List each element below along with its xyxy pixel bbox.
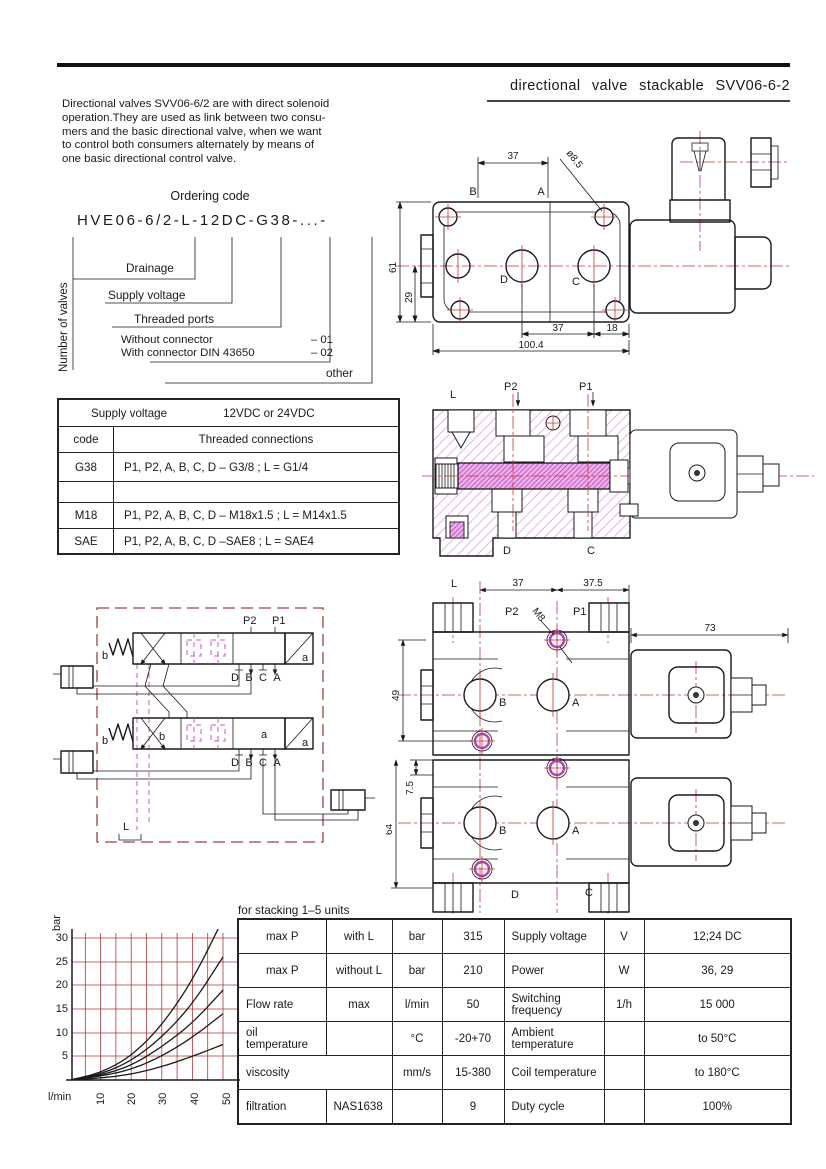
spec-cell: W — [604, 954, 644, 988]
dim-49: 49 — [391, 689, 402, 701]
flow-pressure-chart: bar 30 25 20 15 10 5 l/min 10 20 30 40 5… — [42, 893, 242, 1128]
b-label: b — [102, 735, 108, 747]
spec-cell: 100% — [644, 1090, 791, 1125]
dim-18: 18 — [606, 323, 618, 334]
table-row: M18 P1, P2, A, B, C, D – M18x1.5 ; L = M… — [59, 502, 398, 528]
spec-cell: max P — [238, 919, 326, 954]
x-tick: 20 — [126, 1093, 138, 1105]
port-c-label: C — [587, 545, 595, 557]
code-cell — [59, 482, 114, 502]
port-letter: B — [245, 672, 252, 684]
x-tick: 50 — [221, 1093, 233, 1105]
spec-cell: NAS1638 — [326, 1090, 392, 1125]
dim-29: 29 — [404, 291, 415, 303]
port-c-label: C — [572, 276, 580, 288]
drainage-label: Drainage — [126, 261, 174, 275]
spec-cell: 12;24 DC — [644, 919, 791, 954]
l-label: L — [451, 578, 457, 590]
table-row: G38 P1, P2, A, B, C, D – G3/8 ; L = G1/4 — [59, 452, 398, 481]
port-letter: D — [231, 757, 239, 769]
p2-label: P2 — [505, 606, 518, 618]
spec-cell: without L — [326, 954, 392, 988]
ordering-connector-lines — [55, 190, 395, 395]
x-tick: 30 — [157, 1093, 169, 1105]
dim-73: 73 — [704, 623, 716, 634]
port-letter: A — [273, 672, 281, 684]
spec-cell — [392, 1090, 442, 1125]
intro-line: mers and the basic directional valve, wh… — [62, 126, 362, 140]
with-connector-code: – 02 — [311, 347, 333, 360]
spec-cell: V — [604, 919, 644, 954]
y-tick: 5 — [62, 1050, 68, 1062]
port-b-label: B — [469, 186, 476, 198]
supply-voltage-title: Supply voltage — [91, 407, 167, 420]
dim-100-4: 100.4 — [518, 340, 543, 351]
spec-cell: 210 — [442, 954, 504, 988]
port-a-label: A — [572, 697, 580, 709]
spec-cell: 9 — [442, 1090, 504, 1125]
dim-64: 64 — [386, 823, 395, 835]
page-title: directional valve stackable SVV06-6-2 — [430, 78, 790, 94]
y-tick: 20 — [56, 979, 68, 991]
spec-cell — [326, 1022, 392, 1056]
datasheet-page: directional valve stackable SVV06-6-2 Di… — [0, 0, 826, 1169]
y-tick: 10 — [56, 1027, 68, 1039]
spec-cell: oil temperature — [238, 1022, 326, 1056]
port-a-label: A — [572, 825, 580, 837]
supply-voltage-table: Supply voltage 12VDC or 24VDC code Threa… — [57, 398, 400, 555]
port-b-label: B — [499, 825, 506, 837]
spec-cell: Duty cycle — [504, 1090, 604, 1125]
spec-cell: 15 000 — [644, 988, 791, 1022]
intro-paragraph: Directional valves SVV06-6/2 are with di… — [62, 98, 362, 167]
table-row: filtration NAS1638 9 Duty cycle 100% — [238, 1090, 791, 1125]
y-tick: 15 — [56, 1003, 68, 1015]
spec-cell: viscosity — [238, 1056, 392, 1090]
spec-cell — [604, 1056, 644, 1090]
spec-cell: max — [326, 988, 392, 1022]
spec-cell: Coil temperature — [504, 1056, 604, 1090]
stacked-valves-drawing: 37 37.5 73 49 7.5 64 M8 L P2 P1 B A B A … — [386, 573, 806, 918]
spec-cell — [604, 1022, 644, 1056]
intro-line: Directional valves SVV06-6/2 are with di… — [62, 98, 362, 112]
port-letter: B — [245, 757, 252, 769]
spec-table-caption: for stacking 1–5 units — [238, 903, 349, 917]
dim-37-top: 37 — [507, 151, 519, 162]
without-connector-label: Without connector — [121, 334, 213, 347]
dim-37-bottom: 37 — [552, 323, 564, 334]
spec-cell: bar — [392, 954, 442, 988]
spec-cell: filtration — [238, 1090, 326, 1125]
spec-cell: Supply voltage — [504, 919, 604, 954]
p1-label: P1 — [272, 615, 285, 627]
code-cell: SAE — [59, 529, 114, 553]
desc-cell: P1, P2, A, B, C, D – M18x1.5 ; L = M14x1… — [114, 509, 398, 522]
spec-table: max P with L bar 315 Supply voltage V 12… — [237, 918, 792, 1125]
table-row: oil temperature °C -20+70 Ambient temper… — [238, 1022, 791, 1056]
port-p2-label: P2 — [504, 381, 517, 393]
spec-cell: °C — [392, 1022, 442, 1056]
table-row: max P with L bar 315 Supply voltage V 12… — [238, 919, 791, 954]
table-row: code Threaded connections — [59, 426, 398, 452]
dim-61: 61 — [388, 261, 399, 273]
a-label: a — [302, 652, 309, 664]
title-underline — [487, 100, 790, 102]
spec-cell: 315 — [442, 919, 504, 954]
m8-label: M8 — [530, 606, 547, 624]
spec-cell: to 50°C — [644, 1022, 791, 1056]
intro-line: operation.They are used as link between … — [62, 112, 362, 126]
intro-line: one basic directional control valve. — [62, 153, 362, 167]
spec-cell: -20+70 — [442, 1022, 504, 1056]
spec-cell: Ambient temperature — [504, 1022, 604, 1056]
spec-cell: max P — [238, 954, 326, 988]
intro-line: to control both consumers alternately by… — [62, 139, 362, 153]
port-l-label: L — [450, 389, 456, 401]
valve-section-drawing: L P2 P1 D C — [418, 376, 818, 571]
table-row: SAE P1, P2, A, B, C, D –SAE8 ; L = SAE4 — [59, 528, 398, 553]
table-row: Supply voltage 12VDC or 24VDC — [59, 400, 398, 426]
connector-options: Without connector – 01 With connector DI… — [121, 334, 333, 359]
dim-37-5: 37.5 — [583, 578, 603, 589]
with-connector-label: With connector DIN 43650 — [121, 347, 255, 360]
threaded-header: Threaded connections — [114, 433, 398, 446]
code-cell: G38 — [59, 453, 114, 481]
y-tick: 25 — [56, 956, 68, 968]
port-letter: C — [259, 672, 267, 684]
desc-cell: P1, P2, A, B, C, D – G3/8 ; L = G1/4 — [114, 461, 398, 474]
spec-cell: Switching frequency — [504, 988, 604, 1022]
spec-cell: bar — [392, 919, 442, 954]
y-axis-label: bar — [51, 915, 63, 931]
code-cell: M18 — [59, 503, 114, 528]
spec-cell: with L — [326, 919, 392, 954]
table-row — [59, 481, 398, 502]
spec-cell: 50 — [442, 988, 504, 1022]
spec-cell — [604, 1090, 644, 1125]
supply-voltage-value: 12VDC or 24VDC — [223, 407, 315, 420]
spec-cell: mm/s — [392, 1056, 442, 1090]
y-tick: 30 — [56, 932, 68, 944]
dim-37: 37 — [512, 578, 524, 589]
spec-cell: Power — [504, 954, 604, 988]
solenoid-1 — [631, 650, 766, 738]
spec-cell: 15-380 — [442, 1056, 504, 1090]
l-label: L — [123, 821, 129, 833]
a-label: a — [302, 737, 309, 749]
spec-cell: l/min — [392, 988, 442, 1022]
spec-cell: Flow rate — [238, 988, 326, 1022]
p1-label: P1 — [573, 606, 586, 618]
port-d-label: D — [500, 274, 508, 286]
top-rule — [57, 63, 790, 67]
x-tick: 40 — [189, 1093, 201, 1105]
a-label: a — [261, 729, 268, 741]
b-label: b — [102, 650, 108, 662]
port-d-label: D — [511, 889, 519, 901]
valve-symbol-1 — [109, 627, 313, 674]
port-d-label: D — [503, 545, 511, 557]
solenoid-2 — [631, 778, 766, 866]
dim-7-5: 7.5 — [405, 781, 416, 795]
x-axis-label: l/min — [48, 1091, 71, 1103]
port-c-label: C — [585, 887, 593, 899]
supply-voltage-label: Supply voltage — [108, 288, 185, 302]
table-row: Flow rate max l/min 50 Switching frequen… — [238, 988, 791, 1022]
chart-grid — [72, 933, 238, 1080]
spec-cell: 36, 29 — [644, 954, 791, 988]
spec-cell: 1/h — [604, 988, 644, 1022]
port-b-label: B — [499, 697, 506, 709]
other-label: other — [326, 366, 353, 380]
threaded-ports-label: Threaded ports — [134, 312, 214, 326]
code-header: code — [59, 427, 114, 452]
table-row: viscosity mm/s 15-380 Coil temperature t… — [238, 1056, 791, 1090]
x-tick: 10 — [95, 1093, 107, 1105]
table-row: max P without L bar 210 Power W 36, 29 — [238, 954, 791, 988]
p2-label: P2 — [243, 615, 256, 627]
hydraulic-schematic: P2 P1 b a b a b a D B C A D B C A L — [53, 588, 393, 883]
bolt-holes — [439, 208, 624, 319]
port-letter: C — [259, 757, 267, 769]
port-p1-label: P1 — [579, 381, 592, 393]
desc-cell: P1, P2, A, B, C, D –SAE8 ; L = SAE4 — [114, 535, 398, 548]
spec-cell: to 180°C — [644, 1056, 791, 1090]
b-label: b — [159, 731, 165, 743]
port-a-label: A — [537, 186, 545, 198]
port-letter: D — [231, 672, 239, 684]
valve-top-view-drawing: 37 B A ø8.5 61 29 D C 37 18 100.4 — [388, 123, 800, 378]
without-connector-code: – 01 — [311, 334, 333, 347]
port-letter: A — [273, 757, 281, 769]
valve-symbol-2 — [109, 718, 313, 759]
